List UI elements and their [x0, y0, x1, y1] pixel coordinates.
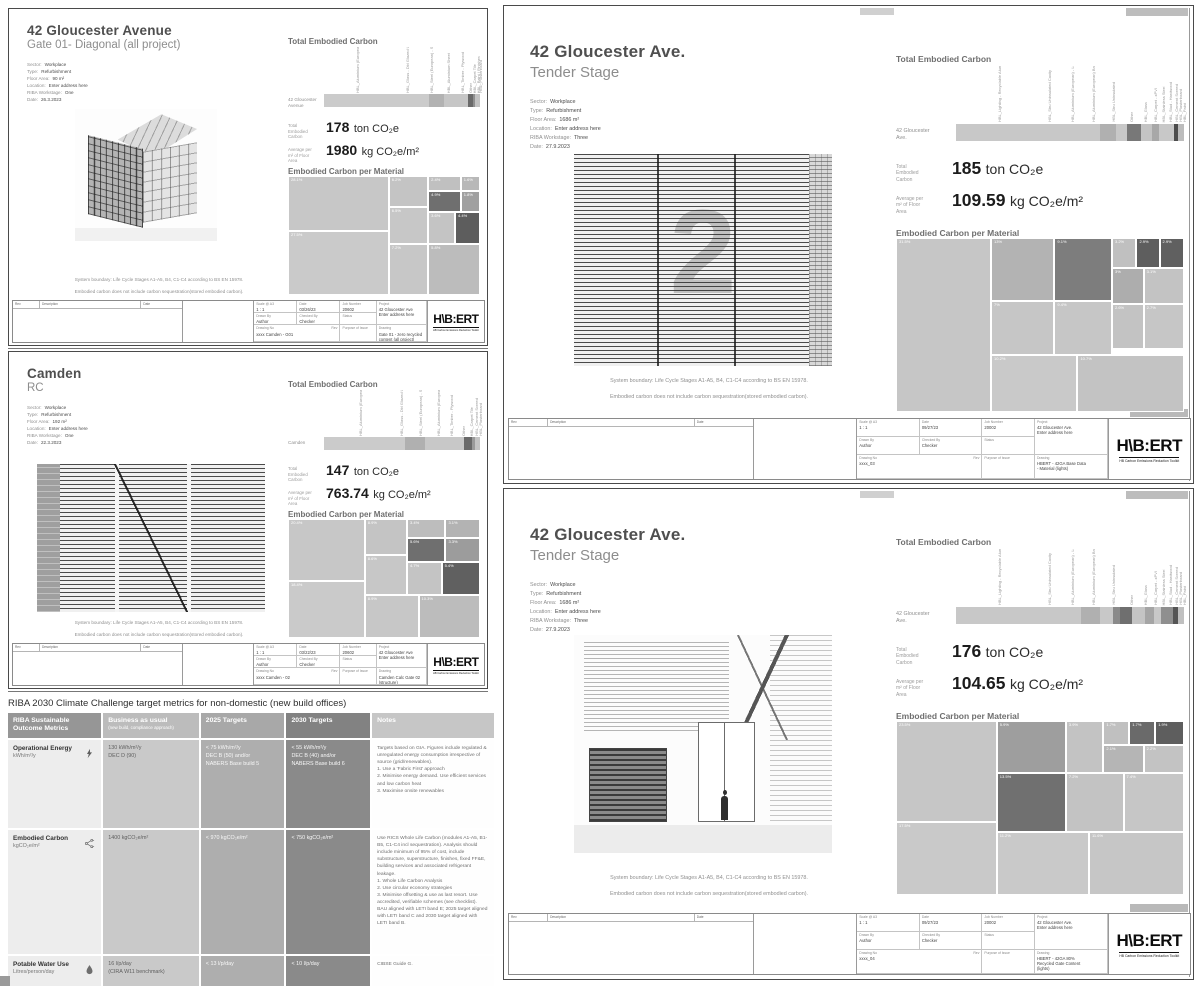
field-value: HBERT - 42GA 80% Recycled Gate Content (…: [1037, 956, 1105, 972]
field-date: Date09/27/23: [920, 419, 983, 437]
bar-tick-label: HBL_Lighting - Recyclable Aluminium LED: [997, 549, 1002, 605]
bar-tick-label: HBL_Paint: [1182, 586, 1187, 605]
treemap-cell-label: 3.3%: [446, 539, 479, 544]
material-treemap: 31.5%13%9.1%3.2%2.9%2.9%3%3.1%7%9.4%2.6%…: [896, 238, 1184, 412]
total-embodied-carbon-heading: Total Embodied Carbon: [288, 380, 378, 389]
treemap-cell-label: 1.9%: [1156, 722, 1183, 727]
riba-metric-cell: Embodied CarbonkgCO₂e/m²: [8, 830, 101, 954]
field-value: Checker: [922, 938, 980, 943]
field-label: Drawing: [379, 669, 424, 673]
field-value: 20602: [342, 307, 373, 312]
print-mark: [1126, 8, 1188, 16]
riba-2025-cell: < 13 l/p/day: [201, 956, 285, 986]
riba-metric-cell: Operational EnergykWh/m²/y: [8, 740, 101, 828]
field-drawn-by: Drawn ByAuthor: [254, 656, 297, 668]
render-slatted-panel: [589, 748, 666, 822]
field-value: Author: [256, 662, 294, 667]
bar-segment: [405, 437, 425, 450]
treemap-cell-label: 10.7%: [1078, 356, 1183, 361]
hbert-logo-tagline: HB Carbon Emissions Reduction Toolkit: [433, 670, 479, 675]
field-project: Project42 Gloucester Ave. Enter address …: [1035, 914, 1108, 950]
sequestration-note: Embodied carbon does not include carbon …: [39, 632, 279, 637]
meta-value: 1686 m²: [559, 117, 579, 123]
bar-tick-label: HBL_Steel (European) - S355: [418, 390, 423, 436]
treemap-cell: 20.4%: [288, 519, 365, 581]
project-meta: Sector:WorkplaceType:RefurbishmentFloor …: [27, 61, 88, 103]
field-value: 1 : 1: [256, 307, 294, 312]
riba-2030-cell: < 10 l/p/day: [286, 956, 370, 986]
avg-per-m2: 763.74: [326, 485, 369, 501]
treemap-cell-label: 3.9%: [1067, 722, 1102, 727]
treemap-cell-label: 9.4%: [1055, 302, 1111, 307]
drop-icon: [84, 964, 95, 975]
treemap-cell-label: 23.5%: [897, 722, 996, 727]
treemap-cell: 3.6%: [428, 212, 455, 244]
bar-segment: [1159, 124, 1174, 141]
field-scale: Scale @ A31 : 1: [254, 301, 297, 313]
riba-notes-cell: Targets based on GIA. Figures include re…: [372, 740, 494, 828]
field-value: Checker: [922, 443, 980, 448]
report-collage: 42 Gloucester Avenue Gate 01- Diagonal (…: [0, 0, 1200, 986]
treemap-cell: 11.2%: [997, 832, 1089, 895]
field-value: HBERT - 42GA Base Data - Material (light…: [1037, 461, 1105, 472]
field-label: Drawn By: [859, 438, 917, 442]
treemap-cell: 3%: [1112, 268, 1144, 305]
treemap-cell: 4.9%: [428, 191, 461, 211]
corner-marker: [0, 976, 10, 986]
treemap-cell-label: 2.9%: [1161, 239, 1183, 244]
field-drawing-no: Drawing Noxxxx Camden - 02Rev: [254, 668, 340, 685]
field-purpose: Purpose of Issue: [982, 950, 1035, 974]
titleblock-fields: Scale @ A31 : 1Date09/27/23Job Number200…: [857, 419, 1108, 479]
meta-label: Date:: [27, 97, 38, 102]
treemap-cell-label: 11.2%: [998, 833, 1088, 838]
meta-label: Sector:: [530, 99, 547, 105]
treemap-cell-label: 5.8%: [429, 245, 479, 250]
render-facade-left: [88, 135, 143, 228]
bar-tick-label: HBL_Stru Uninsulated Cavity: [1047, 553, 1052, 605]
bar-tick-label: HBL_Paint: [1182, 103, 1187, 122]
treemap-cell-label: 8.9%: [366, 596, 418, 601]
bar-row-label: Camden: [288, 440, 322, 446]
field-label: Job Number: [984, 915, 1032, 919]
meta-row: Location:Enter address here: [27, 425, 88, 432]
field-value: xxxx Camden - 02: [256, 675, 337, 680]
bar-segment: [956, 607, 1081, 624]
hbert-logo: H\B:ERTHB Carbon Emissions Reduction Too…: [428, 644, 484, 685]
treemap-cell: 4.4%: [455, 212, 480, 244]
material-treemap: 20.4%18.4%8.9%3.4%3.1%5.6%3.3%8.6%4.7%5.…: [288, 519, 480, 638]
hbert-logo-tagline: HB Carbon Emissions Reduction Toolkit: [1119, 457, 1179, 463]
titleblock: RevDescriptionDateScale @ A31 : 1Date03/…: [12, 643, 485, 686]
bar-tick-labels: HBL_Aluminium (European) - LouvreHBL_Gla…: [324, 47, 480, 93]
riba-header-cell: Business as usual(new build, compliance …: [103, 713, 199, 738]
meta-row: Type:Refurbishment: [27, 68, 88, 75]
riba-header-cell: 2025 Targets: [201, 713, 285, 738]
treemap-cell: 8.9%: [365, 519, 407, 555]
treemap-cell: 3.2%: [1112, 238, 1136, 268]
field-label: Checked By: [922, 933, 980, 937]
meta-label: RIBA Workstage:: [27, 433, 62, 438]
meta-label: Sector:: [27, 62, 42, 67]
total-tons-unit: ton CO₂e: [986, 644, 1044, 660]
meta-value: Workplace: [45, 62, 67, 67]
bar-tick-label: HBL_Stru Uninsulated Cavity: [1047, 70, 1052, 122]
field-value: Camden Calc Gate 02 (structure): [379, 675, 424, 685]
field-status: Status: [340, 656, 376, 668]
meta-value: 22.3.2023: [41, 440, 61, 445]
meta-row: Floor Area:90 m²: [27, 75, 88, 82]
field-label: Job Number: [984, 420, 1032, 424]
total-tons: 178: [326, 119, 349, 135]
bar-tick-label: HBL_Stud - Hardwood: [1168, 82, 1173, 122]
meta-row: Location:Enter address here: [530, 125, 601, 134]
riba-2030-cell: < 750 kgCO₂e/m²: [286, 830, 370, 954]
bar-segment: [324, 94, 429, 107]
sheet-subtitle: Tender Stage: [530, 64, 619, 81]
render-diagonal: [37, 464, 265, 612]
treemap-cell: 1.7%: [1129, 721, 1155, 745]
bar-tick-label: HBL_Stainless Steel: [1161, 86, 1166, 122]
riba-header-cell: RIBA Sustainable Outcome Metrics: [8, 713, 101, 738]
riba-bau-cell: 130 kWh/m²/y DEC D (90): [103, 740, 199, 828]
total-carbon-label: Total Embodied Carbon: [288, 123, 308, 140]
material-treemap: 23.5%17.5%5.9%3.9%1.7%1.7%1.9%2.1%2.2%13…: [896, 721, 1184, 895]
treemap-cell-label: 1.7%: [1130, 722, 1154, 727]
bar-tick-label: Other: [461, 426, 466, 436]
field-value: Author: [859, 938, 917, 943]
meta-value: One: [65, 90, 74, 95]
bar-tick-label: HBL_Carpet - xPVI: [1153, 88, 1158, 122]
titleblock: RevDescriptionDateScale @ A31 : 1Date09/…: [508, 418, 1191, 480]
treemap-cell-label: 5.4%: [443, 563, 479, 568]
field-date: Date03/26/23: [297, 301, 340, 313]
bar-tick-label: HBL_Aluminium Sheet: [446, 53, 451, 93]
meta-value: One: [65, 433, 74, 438]
revision-header-cell: Date: [695, 419, 754, 426]
meta-label: Date:: [530, 627, 543, 633]
treemap-cell: 10.2%: [991, 355, 1077, 412]
treemap-cell: 2.1%: [1103, 745, 1143, 773]
treemap-cell-label: 9.1%: [1055, 239, 1111, 244]
treemap-cell: 1.9%: [1155, 721, 1184, 745]
field-label: Scale @ A3: [256, 645, 294, 649]
field-scale: Scale @ A31 : 1: [857, 914, 920, 932]
sheet-title: Camden: [27, 366, 81, 381]
sheet-title: 42 Gloucester Avenue: [27, 23, 172, 38]
field-value: 42 Gloucester Ave. Enter address here: [1037, 920, 1105, 931]
revision-table-header: RevDescriptionDate: [509, 419, 753, 427]
field-purpose: Purpose of Issue: [340, 325, 376, 342]
meta-value: Workplace: [45, 405, 67, 410]
treemap-cell: 10.7%: [1077, 355, 1184, 412]
meta-label: Date:: [27, 440, 38, 445]
bar-segment: [1100, 124, 1116, 141]
bar-tick-label: HBL_Aluminium (European) Brackets: [1091, 66, 1096, 122]
field-drawing-title: DrawingHBERT - 42GA Base Data - Material…: [1035, 455, 1108, 479]
treemap-cell-label: 2.7%: [1145, 305, 1183, 310]
revision-header-cell: Date: [141, 301, 182, 308]
render-ground: [75, 228, 217, 241]
field-label: Drawing No: [256, 326, 337, 330]
bar-tick-labels: HBL_Aluminium (European) - LouvreHBL_Gla…: [324, 390, 480, 436]
total-carbon-label: Total Embodied Carbon: [896, 647, 919, 666]
treemap-cell: 2.2%: [1144, 745, 1184, 773]
treemap-cell: 7.2%: [389, 244, 428, 295]
field-label: Scale @ A3: [256, 302, 294, 306]
total-tons-unit: ton CO₂e: [354, 466, 399, 478]
titleblock-fields: Scale @ A31 : 1Date09/27/23Job Number200…: [857, 914, 1108, 974]
sheet-subtitle: Gate 01- Diagonal (all project): [27, 39, 180, 51]
total-carbon-value: 185 ton CO₂e: [952, 158, 1043, 179]
treemap-cell-label: 2.9%: [1137, 239, 1158, 244]
bar-segment: [1161, 607, 1172, 624]
treemap-cell-label: 5.6%: [408, 539, 444, 544]
lightning-icon: [84, 748, 95, 759]
meta-value: 27.9.2023: [546, 144, 570, 150]
treemap-cell: 6.2%: [389, 176, 428, 207]
treemap-cell-label: 2.2%: [1145, 746, 1183, 751]
treemap-cell: 11.6%: [1089, 832, 1184, 895]
revision-table-header: RevDescriptionDate: [13, 301, 182, 309]
treemap-cell-label: 3.6%: [429, 213, 454, 218]
bar-tick-label: HBL_Steel (European) - S355: [429, 47, 434, 93]
field-value: 03/22/23: [299, 650, 337, 655]
field-status: Status: [982, 932, 1035, 950]
treemap-cell: 18.4%: [288, 581, 365, 638]
treemap-cell-label: 2.4%: [429, 177, 460, 182]
bar-tick-labels: HBL_Lighting - Recyclable Aluminium LEDH…: [956, 549, 1184, 605]
field-drawing-title: DrawingHBERT - 42GA 80% Recycled Gate Co…: [1035, 950, 1108, 974]
sheet-title: 42 Gloucester Ave.: [530, 42, 685, 62]
bar-segment: [1178, 124, 1184, 141]
field-job-number: Job Number20002: [982, 914, 1035, 932]
field-label: Scale @ A3: [859, 915, 917, 919]
meta-label: Location:: [530, 126, 552, 132]
field-status: Status: [340, 313, 376, 325]
bar-tick-label: Other: [1129, 595, 1134, 605]
riba-metric-cell: Potable Water UseLitres/person/day: [8, 956, 101, 986]
average-carbon-value: 763.74 kg CO₂e/m²: [326, 485, 431, 503]
field-drawn-by: Drawn ByAuthor: [857, 932, 920, 950]
field-value: 20002: [984, 920, 1032, 925]
treemap-cell-label: 7.2%: [1067, 774, 1123, 779]
average-carbon-label: Average per m² of Floor Area: [288, 490, 312, 507]
meta-label: Type:: [27, 412, 38, 417]
bar-segment: [475, 437, 480, 450]
total-tons: 176: [952, 641, 981, 661]
meta-label: Floor Area:: [27, 419, 49, 424]
field-date: Date09/27/23: [920, 914, 983, 932]
treemap-cell: 6.5%: [389, 207, 428, 244]
meta-value: Enter address here: [49, 426, 88, 431]
revision-table-header: RevDescriptionDate: [509, 914, 753, 922]
treemap-cell: 8.9%: [365, 595, 419, 638]
treemap-cell: 3.4%: [407, 519, 445, 538]
meta-row: Date:26.3.2023: [27, 96, 88, 103]
treemap-cell: 31.5%: [896, 238, 991, 412]
meta-row: Sector:Workplace: [530, 98, 601, 107]
field-label: Purpose of Issue: [984, 951, 1032, 955]
meta-value: Refurbishment: [546, 591, 581, 597]
field-value: 42 Gloucester Ave. Enter address here: [1037, 425, 1105, 436]
treemap-cell-label: 6.2%: [390, 177, 427, 182]
bar-tick-label: HBL_Timber - Plywood: [449, 395, 454, 436]
treemap-cell: 2.4%: [428, 176, 461, 191]
hbert-logo: H\B:ERTHB Carbon Emissions Reduction Too…: [1109, 419, 1190, 479]
hbert-logo-text: H\B:ERT: [433, 655, 478, 669]
building-render: [37, 464, 265, 612]
riba-notes-cell: CIBSE Guide G.: [372, 956, 494, 986]
bar-segment: [1113, 607, 1120, 624]
titleblock: RevDescriptionDateScale @ A31 : 1Date09/…: [508, 913, 1191, 975]
bar-segment: [1152, 124, 1159, 141]
field-label: Purpose of Issue: [984, 456, 1032, 460]
riba-header-cell: 2030 Targets: [286, 713, 370, 738]
treemap-cell-label: 11.6%: [1090, 833, 1183, 838]
treemap-cell-label: 20.4%: [289, 520, 364, 525]
meta-label: Sector:: [530, 582, 547, 588]
average-carbon-label: Average per m² of Floor Area: [896, 196, 923, 215]
sequestration-note: Embodied carbon does not include carbon …: [564, 394, 854, 400]
per-material-heading: Embodied Carbon per Material: [896, 228, 1019, 238]
field-job-number: Job Number20002: [982, 419, 1035, 437]
meta-row: Location:Enter address here: [530, 608, 601, 617]
bar-tick-label: HBL_Aluminium (European) Brackets: [436, 390, 441, 436]
meta-label: Floor Area:: [27, 76, 49, 81]
bar-tick-label: HBL_Plasterboard: [478, 403, 483, 436]
field-label: Checked By: [299, 314, 337, 318]
total-carbon-label: Total Embodied Carbon: [896, 164, 919, 183]
treemap-cell: 28.1%: [288, 176, 389, 231]
bar-segment: [464, 437, 472, 450]
hbert-logo-tagline: HB Carbon Emissions Reduction Toolkit: [433, 327, 479, 332]
bar-tick-label: HBL_Aluminium (European) - Louvres: [1070, 549, 1075, 605]
revision-table: RevDescriptionDate: [13, 644, 183, 685]
field-label: Scale @ A3: [859, 420, 917, 424]
treemap-cell-label: 28.1%: [289, 177, 388, 182]
treemap-cell: 5.4%: [442, 562, 480, 595]
field-label: Drawing No: [859, 951, 979, 955]
average-carbon-value: 109.59 kg CO₂e/m²: [952, 190, 1083, 211]
bar-segment: [429, 94, 445, 107]
riba-2025-cell: < 970 kgCO₂e/m²: [201, 830, 285, 954]
revision-table: RevDescriptionDate: [509, 419, 754, 479]
avg-per-m2-unit: kg CO₂e/m²: [1010, 676, 1083, 692]
molecule-icon: [84, 838, 95, 849]
render-mullion: [734, 154, 736, 366]
meta-value: Three: [574, 135, 588, 141]
meta-value: Enter address here: [555, 126, 601, 132]
titleblock-fields: Scale @ A31 : 1Date03/26/23Job Number206…: [254, 301, 428, 342]
total-embodied-carbon-heading: Total Embodied Carbon: [288, 37, 378, 46]
bar-segment: [425, 437, 464, 450]
treemap-cell: 3.3%: [445, 538, 480, 562]
field-value: 1 : 1: [256, 650, 294, 655]
bar-row-label: 42 Gloucester Avenue: [288, 97, 322, 109]
field-rev-label: Rev: [973, 951, 979, 955]
treemap-cell-label: 5.9%: [998, 722, 1065, 727]
average-carbon-value: 1980 kg CO₂e/m²: [326, 142, 419, 160]
treemap-cell-label: 13.5%: [998, 774, 1065, 779]
field-value: xxxx_03: [859, 461, 979, 466]
bar-tick-labels: HBL_Lighting - Recyclable Aluminium LEDH…: [956, 66, 1184, 122]
field-project: Project42 Gloucester Ave Enter address h…: [377, 301, 427, 325]
meta-row: Location:Enter address here: [27, 82, 88, 89]
bar-tick-label: HBL_Stru Uninsulated: [1111, 82, 1116, 122]
meta-label: Location:: [27, 426, 46, 431]
treemap-cell-label: 4.7%: [408, 563, 441, 568]
field-value: Checker: [299, 319, 337, 324]
bar-segment: [324, 437, 405, 450]
stacked-bar-chart: [324, 94, 480, 107]
field-label: Drawing: [1037, 456, 1105, 460]
field-label: Status: [984, 933, 1032, 937]
bar-segment: [1154, 607, 1161, 624]
field-project: Project42 Gloucester Ave Enter address h…: [377, 644, 427, 668]
treemap-cell: 13%: [991, 238, 1054, 301]
field-label: Purpose of Issue: [342, 669, 373, 673]
field-value: 42 Gloucester Ave Enter address here: [379, 307, 424, 318]
revision-header-cell: Date: [141, 644, 182, 651]
stacked-bar-chart: [324, 437, 480, 450]
field-checked-by: Checked ByChecker: [920, 932, 983, 950]
field-value: Checker: [299, 662, 337, 667]
treemap-cell: 4.7%: [407, 562, 442, 595]
meta-value: 26.3.2023: [41, 97, 61, 102]
total-carbon-value: 147 ton CO₂e: [326, 462, 399, 480]
bar-tick-label: HBL_Aluminium (European) Brackets: [1091, 549, 1096, 605]
meta-row: Date:27.9.2023: [530, 143, 601, 152]
render-louvres: [574, 154, 832, 366]
print-mark: [1130, 904, 1188, 912]
treemap-cell: 5.8%: [428, 244, 480, 295]
treemap-cell: 13.5%: [997, 773, 1066, 832]
treemap-cell-label: 13%: [992, 239, 1053, 244]
revision-header-cell: Date: [695, 914, 754, 921]
bar-tick-label: HBL_Glass: [1143, 585, 1148, 605]
bar-tick-label: HBL_Glass - Dbl Glazed Unit: [405, 47, 410, 93]
render-brick-band: [809, 154, 832, 366]
treemap-cell-label: 3.2%: [1113, 239, 1135, 244]
total-tons-unit: ton CO₂e: [986, 161, 1044, 177]
hbert-logo-text: H\B:ERT: [1117, 436, 1182, 456]
treemap-cell-label: 6.5%: [390, 208, 427, 213]
titleblock-empty-cell: [183, 301, 254, 342]
field-checked-by: Checked ByChecker: [920, 437, 983, 455]
bar-segment: [1127, 124, 1141, 141]
meta-label: Floor Area:: [530, 600, 556, 606]
system-boundary-note: System boundary: Life Cycle Stages A1-A5…: [39, 277, 279, 282]
field-drawing-title: DrawingCamden Calc Gate 02 (structure): [377, 668, 427, 685]
treemap-cell-label: 17.5%: [897, 823, 996, 828]
titleblock-fields: Scale @ A31 : 1Date03/22/23Job Number206…: [254, 644, 428, 685]
print-mark: [860, 8, 894, 15]
meta-row: Floor Area:1686 m²: [530, 599, 601, 608]
treemap-cell: 27.5%: [288, 231, 389, 295]
treemap-cell: 8.6%: [365, 555, 407, 595]
field-label: Drawn By: [859, 933, 917, 937]
treemap-cell-label: 8.9%: [366, 520, 406, 525]
meta-row: Date:22.3.2023: [27, 439, 88, 446]
field-value: 42 Gloucester Ave Enter address here: [379, 650, 424, 661]
treemap-cell: 2.7%: [1144, 304, 1184, 349]
bar-tick-label: HBL_Aluminium (European) - Louvre: [358, 390, 363, 436]
avg-per-m2-unit: kg CO₂e/m²: [362, 146, 419, 158]
treemap-cell: 2.9%: [1136, 238, 1159, 268]
meta-row: Floor Area:192 m²: [27, 418, 88, 425]
render-floor: [574, 825, 832, 853]
